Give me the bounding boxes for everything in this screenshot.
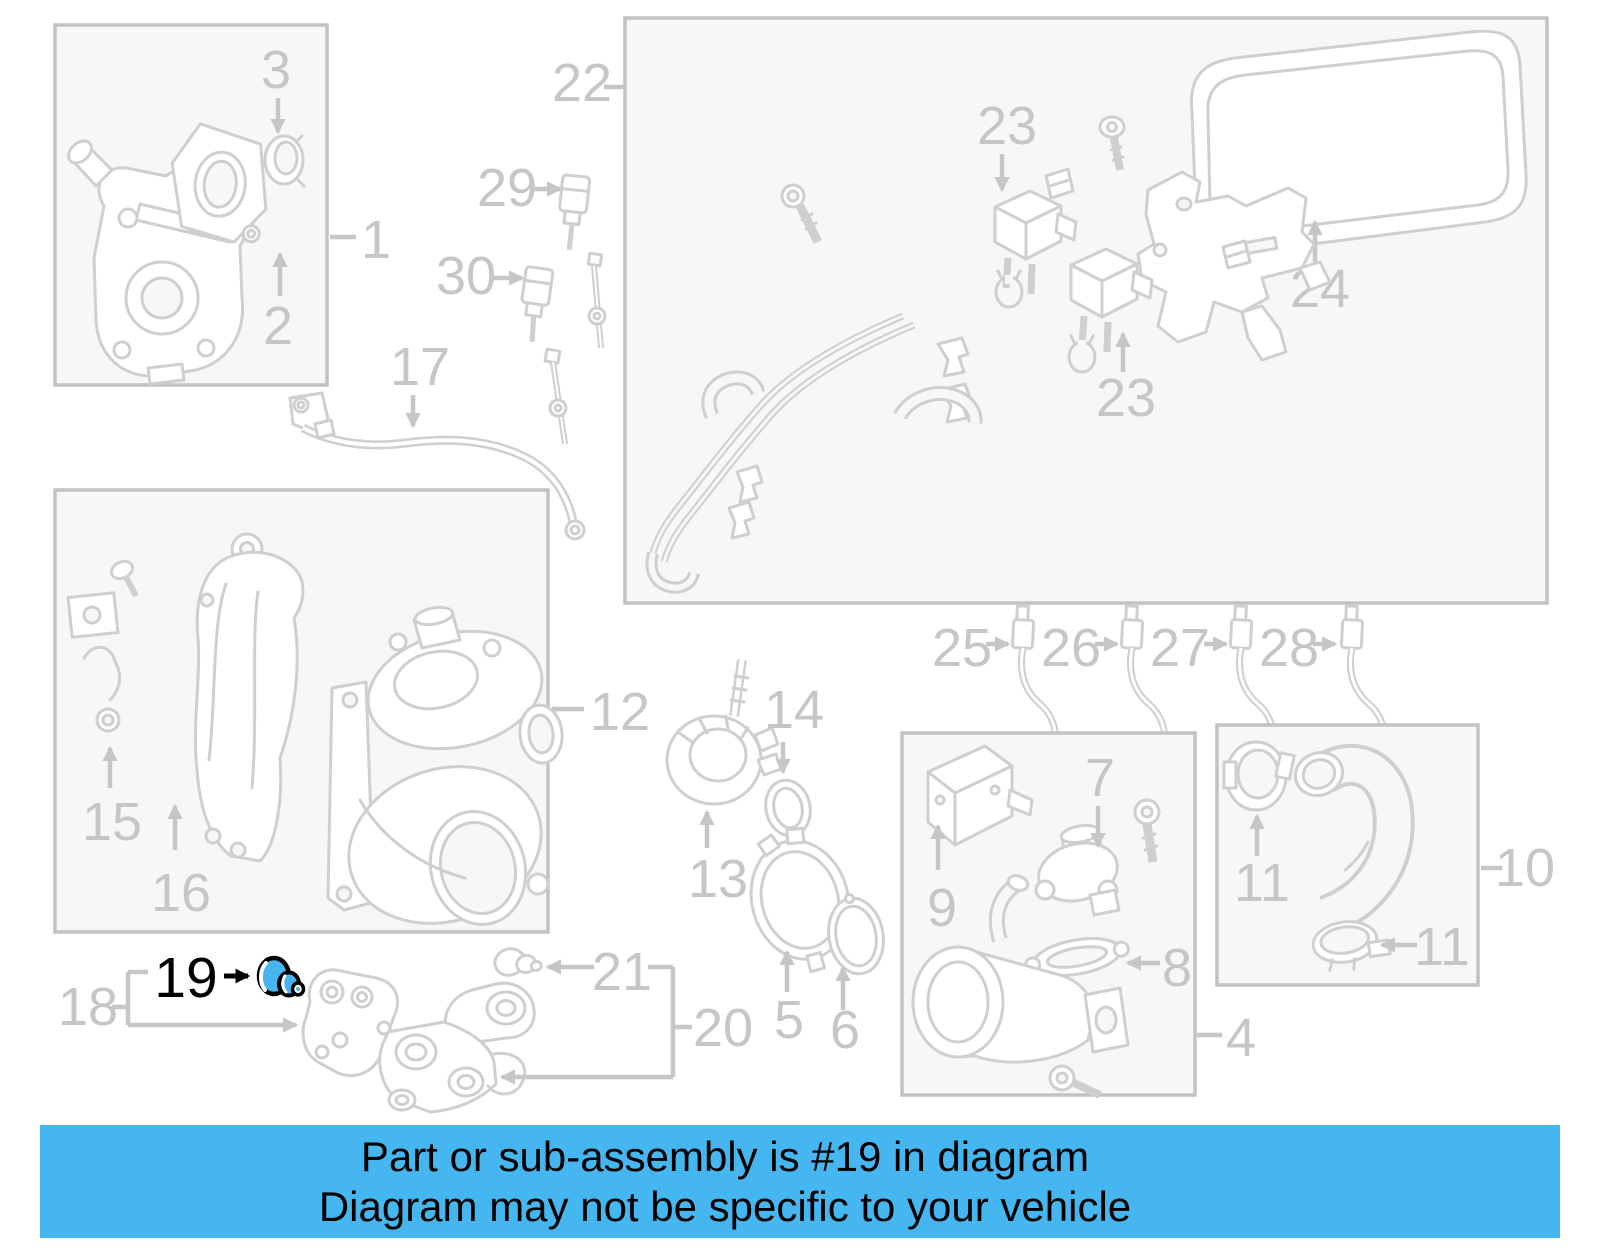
part-label-14: 14 xyxy=(764,680,824,740)
highlighted-part-19: 19 xyxy=(154,946,303,1010)
part-label-10: 10 xyxy=(1495,838,1555,898)
part-label-11a: 11 xyxy=(1234,853,1290,913)
diagram-canvas: 3 2 1 29 30 xyxy=(0,0,1600,1249)
part-label-9: 9 xyxy=(927,878,957,938)
part-label-20: 20 xyxy=(693,998,753,1058)
part-label-4: 4 xyxy=(1226,1008,1256,1068)
group-box-vacuum-hoses: 22 24 23 xyxy=(552,18,1547,603)
part-label-30: 30 xyxy=(436,246,496,306)
part-label-23a: 23 xyxy=(977,96,1037,156)
part-label-12: 12 xyxy=(590,682,650,742)
engine-mount-art xyxy=(380,983,534,1112)
part-label-8: 8 xyxy=(1162,938,1192,998)
sensor-probe-2-art xyxy=(545,349,566,444)
part-label-3: 3 xyxy=(261,40,291,100)
part-label-11b: 11 xyxy=(1414,917,1470,977)
sensor-probe-art xyxy=(588,253,605,348)
group-box-vacuum-pump: 3 2 1 xyxy=(55,25,391,385)
highlighted-plug-19-art xyxy=(259,958,304,996)
group-box-hose: 10 11 11 xyxy=(1217,725,1555,985)
part-label-25: 25 xyxy=(932,618,992,678)
group-box-egr: 4 9 7 xyxy=(902,733,1256,1095)
part-label-13: 13 xyxy=(688,849,748,909)
part-label-22: 22 xyxy=(552,53,612,113)
highlight-banner: Part or sub-assembly is #19 in diagram D… xyxy=(40,1125,1560,1238)
group-box-turbocharger: 12 15 16 xyxy=(55,490,650,948)
part-label-17: 17 xyxy=(390,337,450,397)
part-label-21: 21 xyxy=(592,942,652,1002)
part-label-19-highlight: 19 xyxy=(154,946,217,1010)
part-label-27: 27 xyxy=(1150,618,1210,678)
bracket-part-20-21 xyxy=(648,967,692,1077)
part-label-23b: 23 xyxy=(1096,368,1156,428)
banner-line-2: Diagram may not be specific to your vehi… xyxy=(319,1182,1131,1232)
sensor-29-30-group: 29 30 xyxy=(436,158,605,444)
part-label-15: 15 xyxy=(82,792,142,852)
part-label-29: 29 xyxy=(477,158,537,218)
part-label-28: 28 xyxy=(1259,618,1319,678)
gasket-6-group: 6 xyxy=(822,890,889,1060)
parts-diagram-page: 3 2 1 29 30 xyxy=(0,0,1600,1249)
sensor-connector-29-art xyxy=(555,175,590,251)
part-label-16: 16 xyxy=(151,863,211,923)
banner-line-1: Part or sub-assembly is #19 in diagram xyxy=(361,1132,1089,1182)
part-label-26: 26 xyxy=(1041,618,1101,678)
part-label-18: 18 xyxy=(58,977,118,1037)
part-label-5: 5 xyxy=(774,990,804,1050)
part-label-7: 7 xyxy=(1085,748,1115,808)
grommet-21-art xyxy=(491,941,542,983)
part-label-2: 2 xyxy=(263,296,293,356)
part-label-1: 1 xyxy=(361,210,391,270)
